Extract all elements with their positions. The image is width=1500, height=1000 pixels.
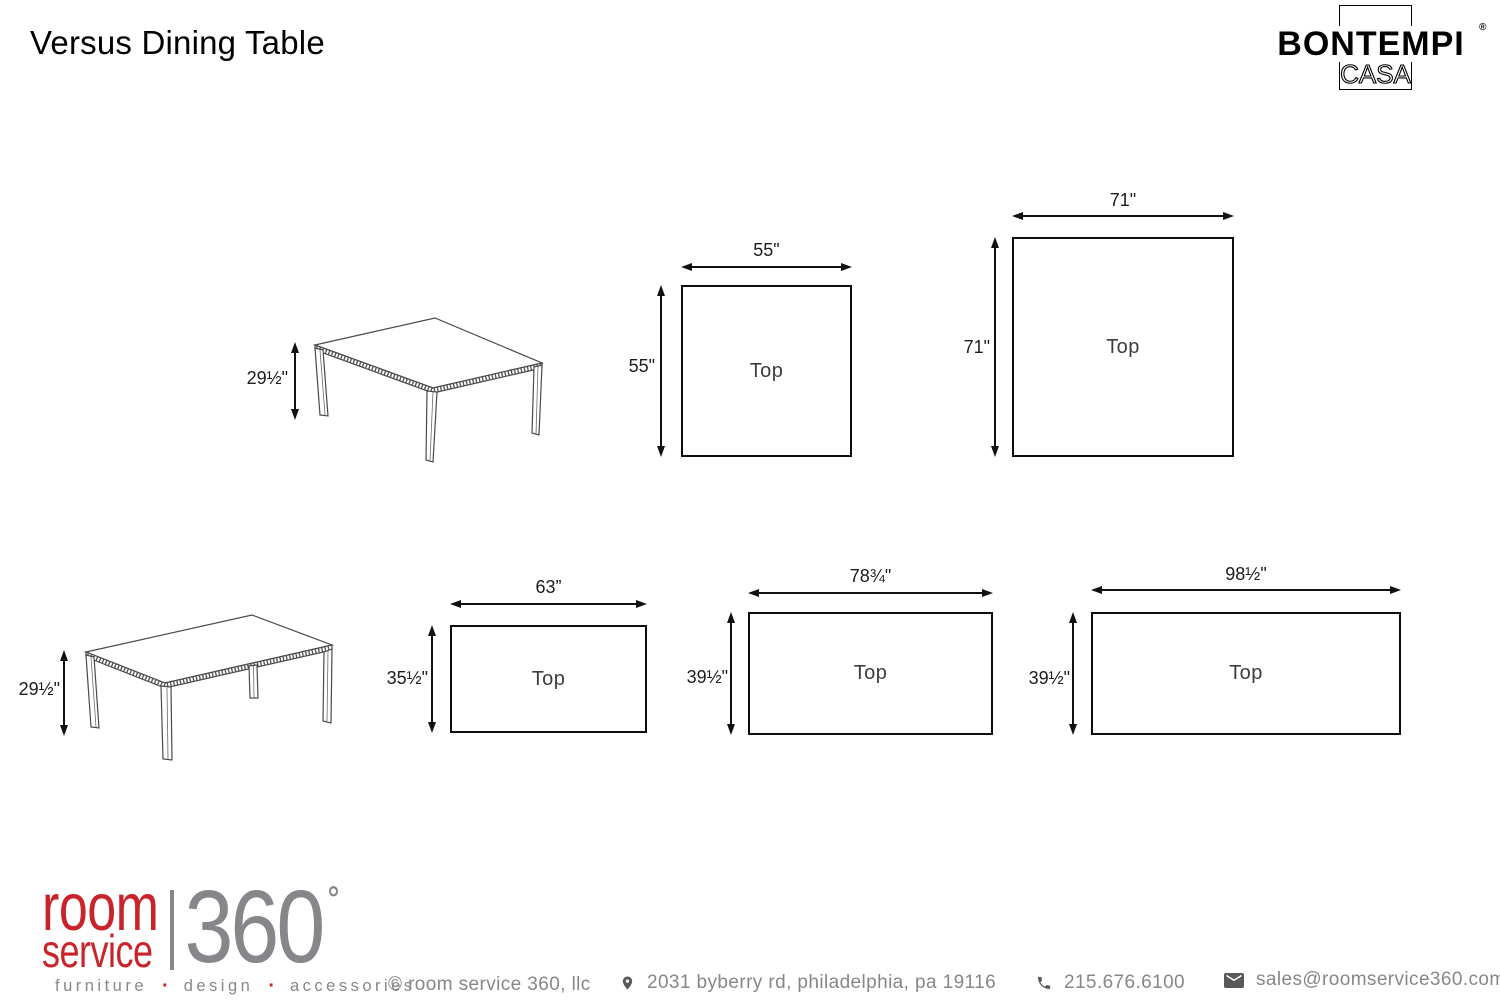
width-dimension-arrow: [1091, 583, 1401, 597]
spec-sheet-page: Versus Dining Table BONTEMPI ® CASA 29½"…: [0, 0, 1500, 1000]
address-group: 2031 byberry rd, philadelphia, pa 19116: [620, 972, 996, 994]
top-view-55x55: 55" 55" Top: [620, 240, 865, 470]
width-dimension-arrow: [748, 586, 993, 600]
height-dimension-label: 29½": [240, 368, 288, 388]
tabletop-outline: Top: [450, 625, 647, 733]
width-dimension-arrow: [1012, 209, 1234, 223]
copyright-label: © room service 360, llc: [388, 974, 591, 996]
top-surface-label: Top: [854, 662, 887, 685]
rectangular-table-side-view: 29½": [10, 608, 365, 796]
tagline-word-design: design: [184, 977, 254, 996]
tagline-word-furniture: furniture: [55, 977, 147, 996]
height-dimension-arrow: [425, 625, 439, 733]
bontempi-casa-logo: BONTEMPI ® CASA: [1263, 2, 1491, 98]
width-dimension-arrow: [681, 260, 852, 274]
room-service-360-logo: room service 360: [42, 884, 338, 970]
tabletop-outline: Top: [1091, 612, 1401, 735]
top-surface-label: Top: [1106, 336, 1139, 359]
top-view-78x39: 78¾" 39½" Top: [685, 560, 1010, 750]
top-surface-label: Top: [750, 360, 783, 383]
tabletop-outline: Top: [681, 285, 852, 457]
height-dimension-arrow: [724, 612, 738, 735]
email-label: sales@roomservice360.com: [1256, 969, 1500, 991]
top-view-63x35: 63” 35½" Top: [380, 575, 660, 745]
top-view-98x39: 98½" 39½" Top: [1025, 558, 1425, 750]
top-surface-label: Top: [532, 668, 565, 691]
width-dimension-label: 55": [681, 240, 852, 260]
tagline-dot-icon: ·: [268, 975, 275, 998]
tabletop-outline: Top: [1012, 237, 1234, 457]
width-dimension-arrow: [450, 597, 647, 611]
height-dimension-label: 39½": [685, 667, 728, 687]
phone-group: 215.676.6100: [1036, 972, 1185, 994]
tagline-dot-icon: ·: [162, 975, 169, 998]
height-dimension-label: 39½": [1025, 668, 1070, 688]
logo-tagline: furniture · design · accessories: [55, 975, 416, 998]
width-dimension-label: 63”: [450, 577, 647, 597]
height-dimension-label: 29½": [10, 679, 60, 699]
location-pin-icon: [620, 973, 635, 993]
envelope-icon: [1224, 973, 1244, 988]
logo-word-service: service: [42, 933, 158, 971]
square-table-illustration: [300, 312, 570, 472]
phone-label: 215.676.6100: [1064, 972, 1185, 994]
top-view-71x71: 71" 71" Top: [940, 190, 1240, 460]
rectangular-table-illustration: [60, 608, 360, 793]
height-dimension-arrow: [988, 237, 1002, 457]
height-dimension-arrow: [1066, 612, 1080, 735]
registered-trademark-icon: ®: [1479, 22, 1486, 33]
width-dimension-label: 98½": [1091, 564, 1401, 584]
height-dimension-label: 71": [940, 337, 990, 357]
copyright-text: © room service 360, llc: [388, 974, 591, 996]
width-dimension-label: 71": [1012, 190, 1234, 210]
email-group: sales@roomservice360.com: [1224, 969, 1500, 991]
width-dimension-label: 78¾": [748, 566, 993, 586]
room-service-wordmark: room service: [42, 884, 158, 971]
address-label: 2031 byberry rd, philadelphia, pa 19116: [647, 972, 996, 994]
bontempi-wordmark: BONTEMPI: [1265, 26, 1477, 62]
square-table-side-view: 29½": [240, 312, 575, 474]
logo-divider-bar: [170, 890, 174, 970]
page-title: Versus Dining Table: [30, 24, 325, 62]
height-dimension-label: 35½": [380, 668, 428, 688]
tabletop-outline: Top: [748, 612, 993, 735]
height-dimension-arrow: [654, 285, 668, 457]
top-surface-label: Top: [1229, 662, 1262, 685]
logo-number-360: 360: [184, 886, 338, 968]
bontempi-casa-subtitle: CASA: [1339, 60, 1412, 88]
height-dimension-label: 55": [620, 356, 655, 376]
degree-icon: [329, 886, 338, 897]
phone-icon: [1036, 975, 1052, 991]
